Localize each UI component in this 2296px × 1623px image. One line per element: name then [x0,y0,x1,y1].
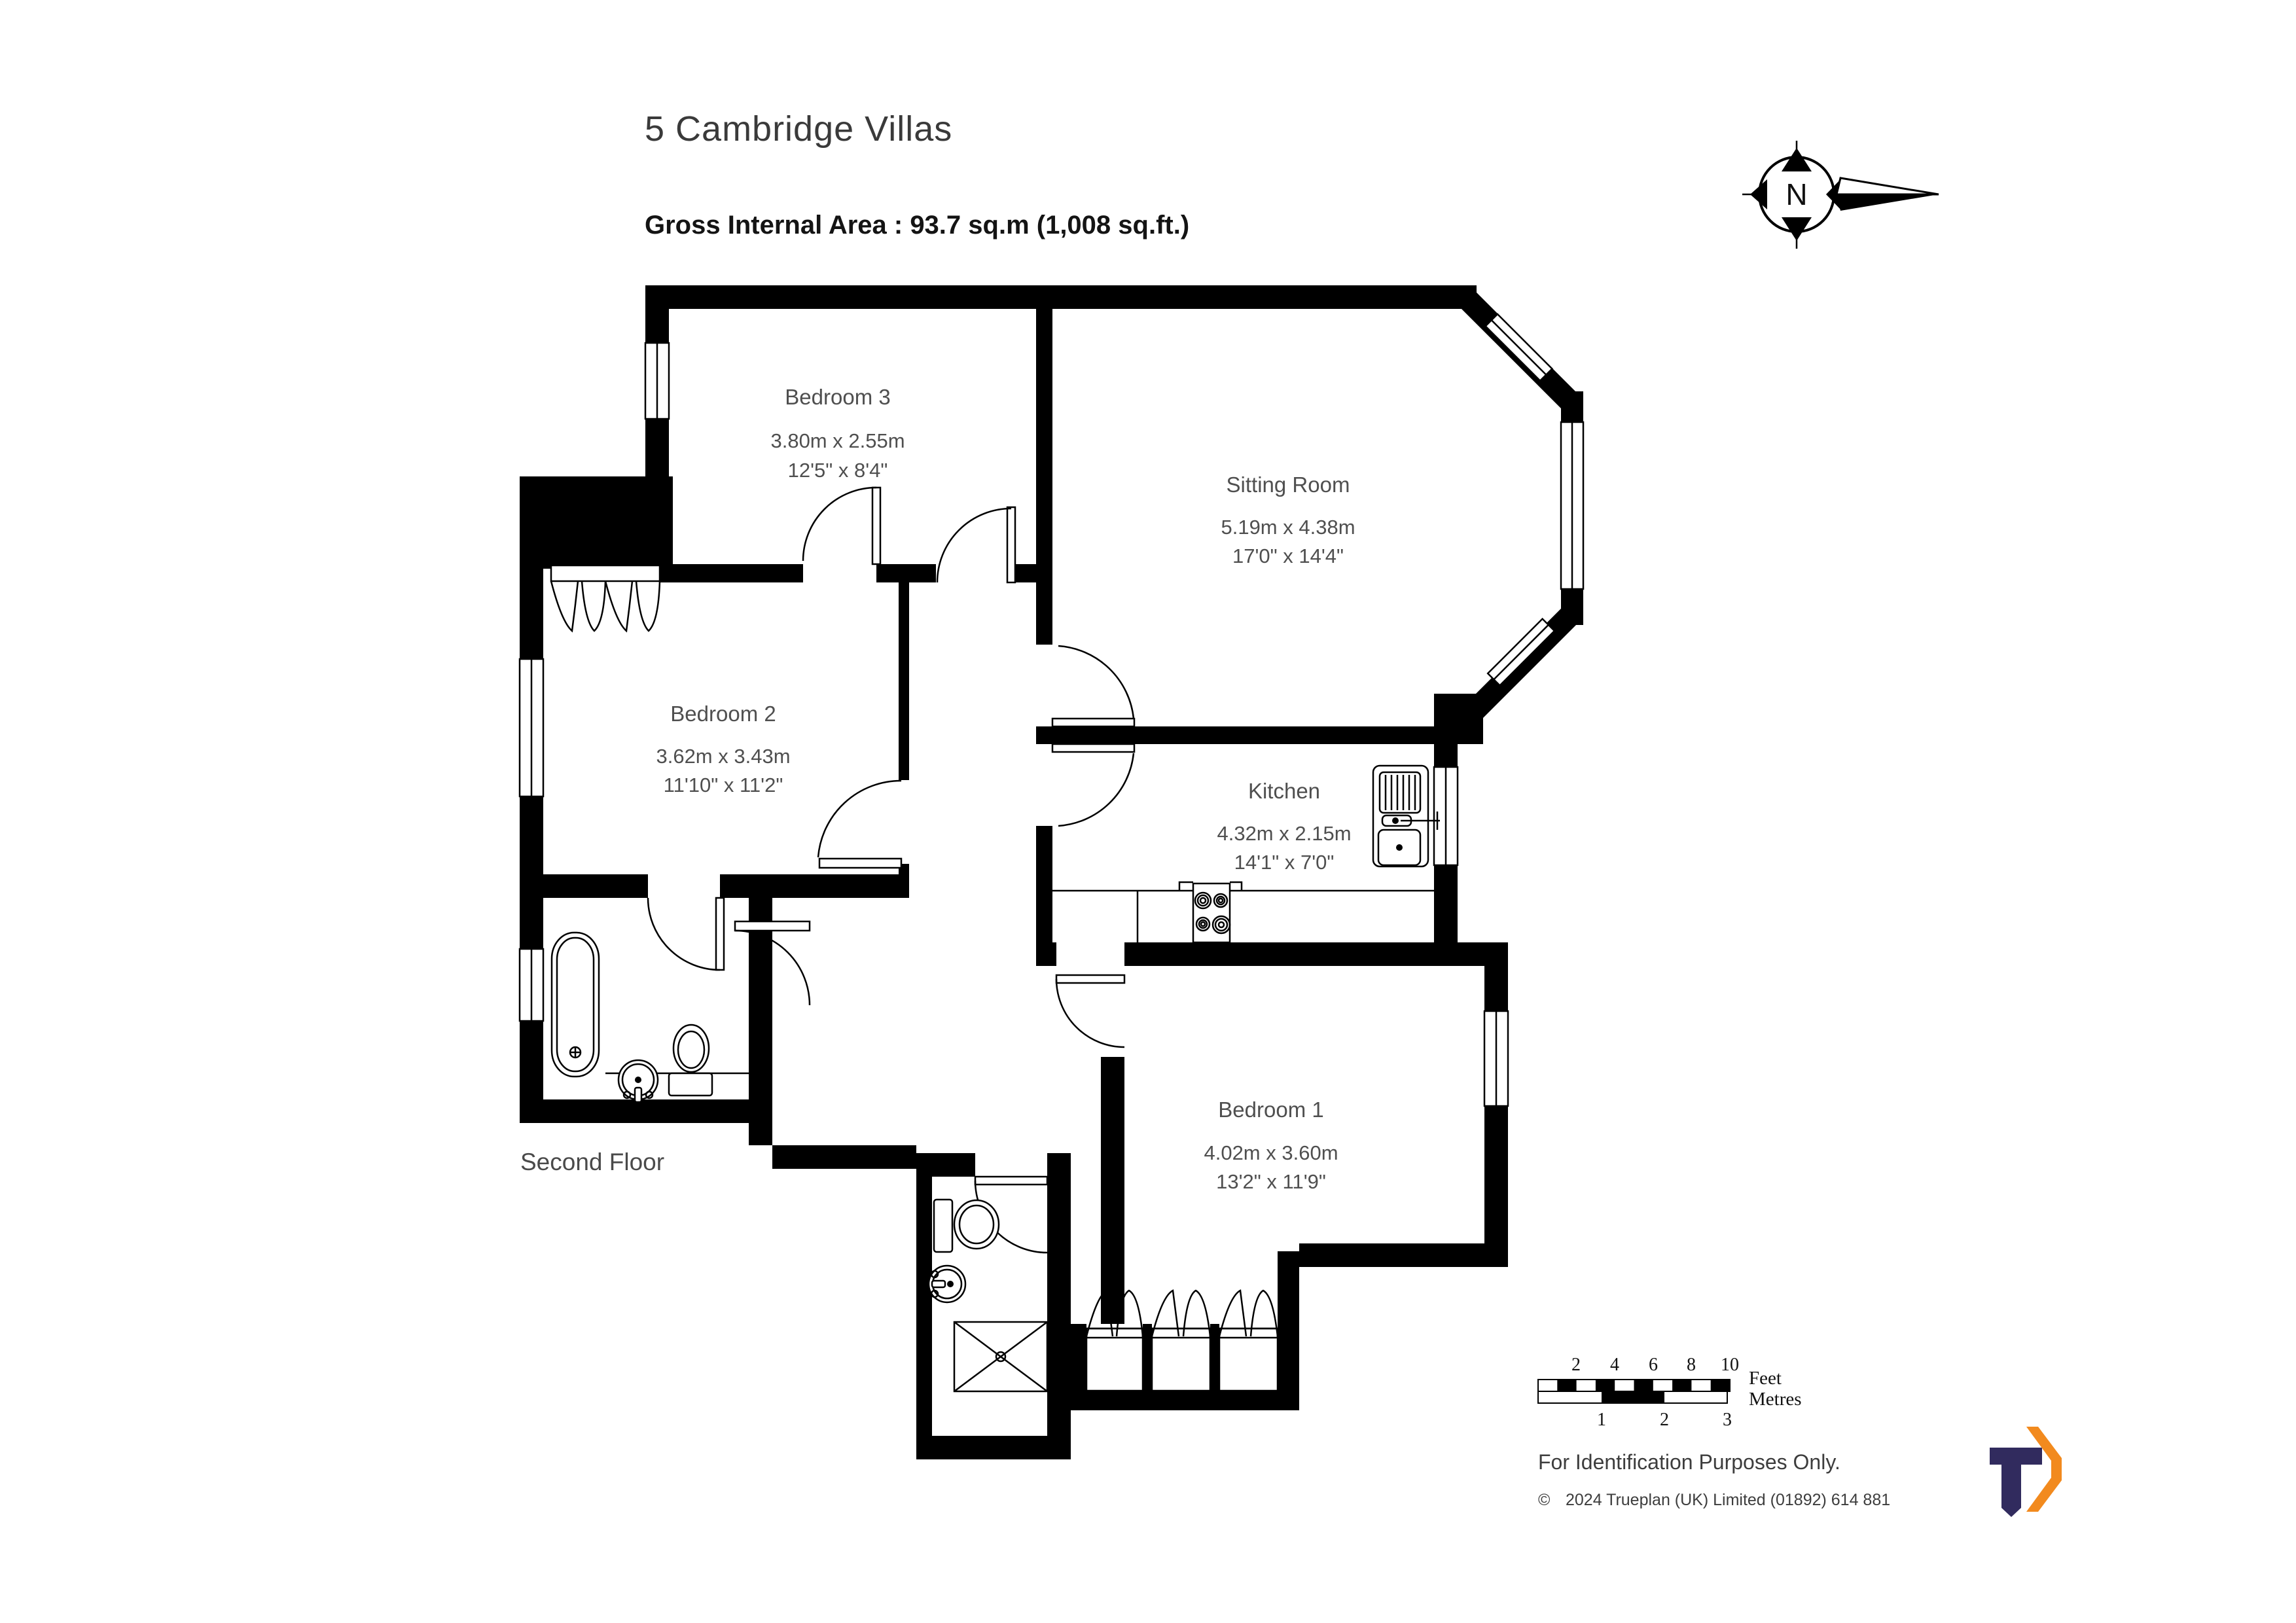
compass-rose-icon: N [1742,141,1939,249]
svg-text:4.32m x 2.15m: 4.32m x 2.15m [1217,822,1351,845]
scale-feet-10: 10 [1721,1355,1739,1375]
bedroom2-casement-window [551,565,660,631]
identification-note: For Identification Purposes Only. [1538,1450,1840,1474]
bathroom-window [520,949,543,1021]
logo-chevron [2026,1427,2062,1512]
svg-text:Bedroom 1: Bedroom 1 [1218,1097,1323,1122]
floor-label: Second Floor [520,1149,664,1175]
room-label-bedroom1: Bedroom 1 4.02m x 3.60m 13'2" x 11'9" [1204,1097,1338,1193]
trueplan-logo [1990,1427,2062,1517]
scale-feet-label: Feet [1749,1368,1782,1389]
bedroom2-door [818,781,901,868]
floorplan-canvas: 5 Cambridge Villas Gross Internal Area :… [0,0,2296,1623]
room-label-bedroom2: Bedroom 2 3.62m x 3.43m 11'10" x 11'2" [656,702,790,796]
bedroom3-inner-door [803,488,880,564]
scale-metre-1: 1 [1597,1410,1606,1430]
bedroom1-door [1056,975,1124,1047]
svg-text:Bedroom 3: Bedroom 3 [785,385,890,409]
room-label-sitting-room: Sitting Room 5.19m x 4.38m 17'0" x 14'4" [1221,473,1355,567]
scale-feet-4: 4 [1610,1355,1619,1375]
wc-fixtures [929,1200,1047,1391]
kitchen-door [1052,744,1134,826]
scale-feet-8: 8 [1687,1355,1696,1375]
scale-metre-3: 3 [1723,1410,1732,1430]
kitchen-sink-icon [1373,766,1440,866]
svg-text:4.02m x 3.60m: 4.02m x 3.60m [1204,1141,1338,1164]
page-title: 5 Cambridge Villas [645,109,952,149]
svg-text:12'5" x 8'4": 12'5" x 8'4" [788,459,888,482]
svg-text:3.80m x 2.55m: 3.80m x 2.55m [770,429,905,452]
bedroom1-side-window [1484,1011,1508,1106]
svg-text:3.62m x 3.43m: 3.62m x 3.43m [656,745,790,768]
svg-text:17'0" x 14'4": 17'0" x 14'4" [1232,544,1344,567]
sitting-room-door [1052,646,1134,726]
bathtub-icon [552,933,599,1077]
logo-t-bar [1990,1448,2042,1465]
scale-feet-6: 6 [1649,1355,1658,1375]
wc-toilet-icon [934,1200,999,1252]
scale-bar: 2 4 6 8 10 1 2 3 Feet Metres [1538,1355,1802,1430]
copyright-line: 2024 Trueplan (UK) Limited (01892) 614 8… [1566,1491,1890,1509]
compass-north-letter: N [1785,177,1807,211]
scale-feet-2: 2 [1571,1355,1581,1375]
svg-text:5.19m x 4.38m: 5.19m x 4.38m [1221,516,1355,539]
svg-text:11'10" x 11'2": 11'10" x 11'2" [664,774,783,796]
walls [520,285,1583,1459]
bedroom3-door [937,507,1015,582]
bedroom3-window [645,343,669,419]
shower-tray-icon [954,1322,1047,1391]
footer: For Identification Purposes Only. © 2024… [1538,1450,1890,1509]
svg-text:14'1" x 7'0": 14'1" x 7'0" [1234,851,1335,874]
room-label-kitchen: Kitchen 4.32m x 2.15m 14'1" x 7'0" [1217,779,1351,874]
scale-metre-2: 2 [1660,1410,1669,1430]
logo-t-stem [2001,1465,2021,1517]
copyright-symbol: © [1538,1491,1551,1509]
bathroom-basin-icon [619,1060,658,1102]
scale-metres-label: Metres [1749,1389,1802,1410]
bathroom-toilet-icon [669,1025,712,1096]
svg-text:Sitting Room: Sitting Room [1227,473,1350,497]
room-label-bedroom3: Bedroom 3 3.80m x 2.55m 12'5" x 8'4" [770,385,905,482]
svg-text:Bedroom 2: Bedroom 2 [670,702,776,726]
svg-text:Kitchen: Kitchen [1248,779,1320,803]
wc-basin-icon [929,1266,965,1302]
gross-internal-area: Gross Internal Area : 93.7 sq.m (1,008 s… [645,211,1189,240]
svg-text:13'2" x 11'9": 13'2" x 11'9" [1216,1170,1326,1193]
bathroom-door [648,898,724,970]
bay-window-middle [1561,422,1583,589]
doors [648,488,1134,1253]
bedroom2-window [520,659,543,796]
bay-window-upper [1486,314,1552,381]
